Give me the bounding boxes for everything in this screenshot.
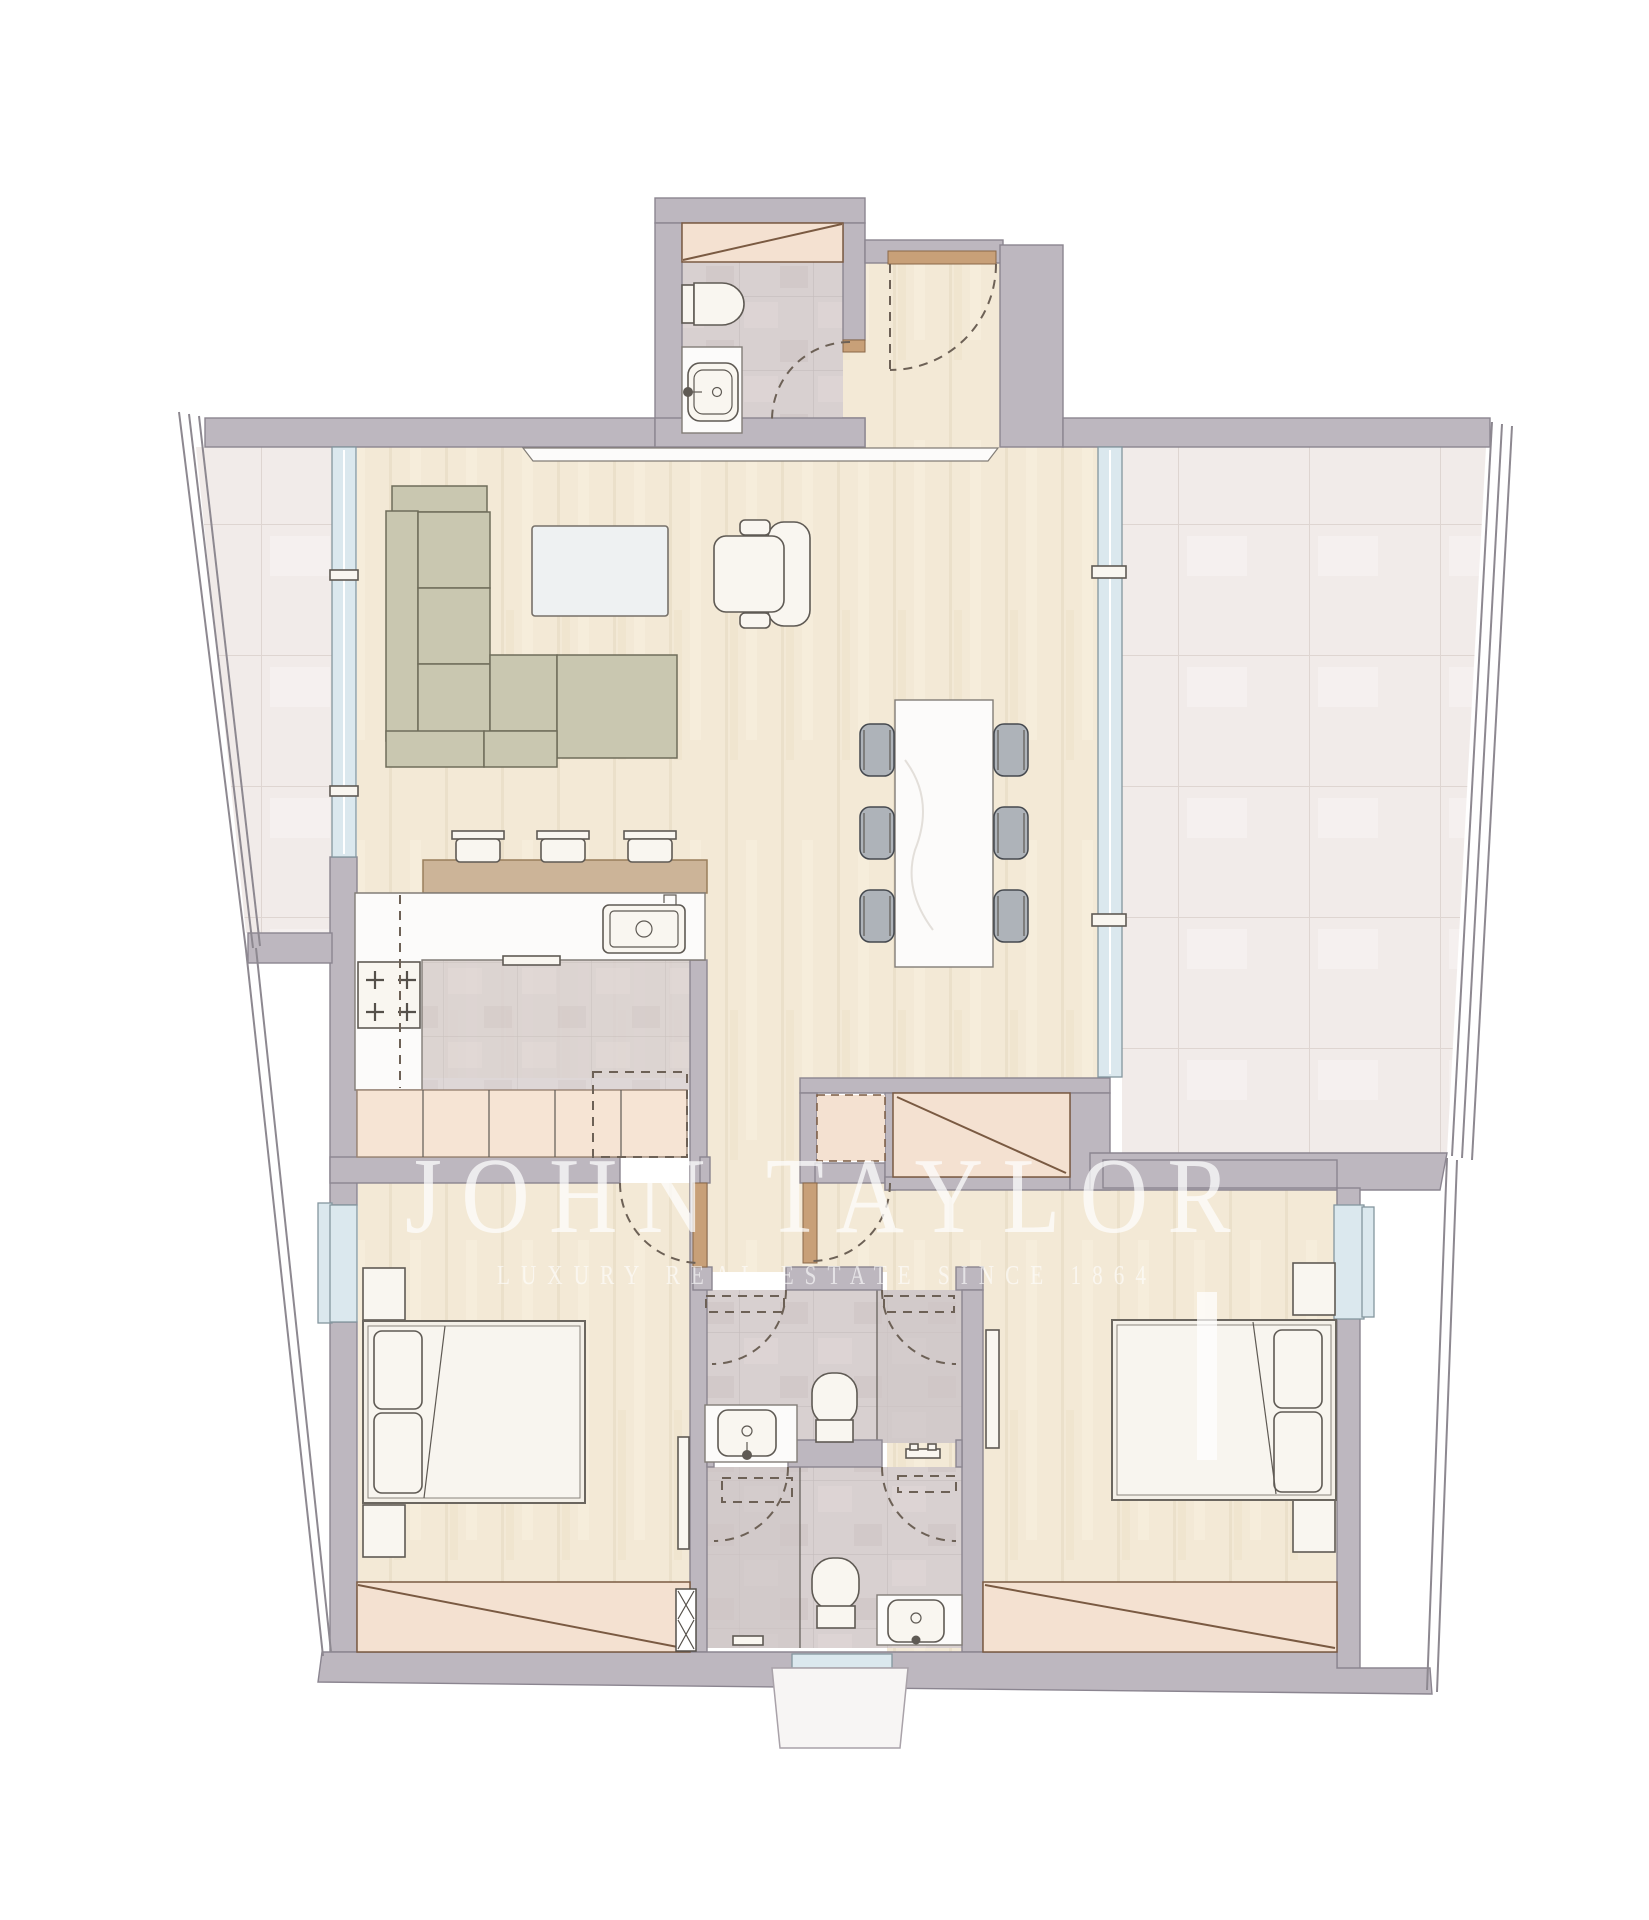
toilet-seat	[817, 1606, 855, 1628]
wall-segment	[205, 418, 655, 447]
pillow	[1274, 1330, 1322, 1408]
wall-segment	[690, 960, 707, 1652]
armchair-seat	[714, 536, 784, 612]
dining-chair	[860, 724, 894, 776]
facade-line	[246, 950, 323, 1656]
sofa-cushion	[418, 588, 490, 664]
floor-plan-drawing: JOHN TAYLOR LUXURY REAL ESTATE SINCE 186…	[0, 0, 1649, 1920]
bar-counter	[423, 860, 707, 893]
entry-hall-floor	[865, 263, 1000, 447]
watermark-title: JOHN TAYLOR	[405, 1137, 1250, 1256]
bar-stools	[452, 831, 676, 862]
wall-segment	[655, 198, 865, 223]
bar-stool	[541, 839, 585, 862]
pillow	[374, 1331, 422, 1409]
wall-segment	[330, 1322, 357, 1652]
sofa-front	[484, 731, 557, 767]
duct	[676, 1589, 696, 1651]
terrace-right-floor	[1122, 447, 1486, 1153]
wall-segment	[788, 1440, 882, 1467]
floor-plan-page: JOHN TAYLOR LUXURY REAL ESTATE SINCE 186…	[0, 0, 1649, 1920]
toilet	[812, 1373, 857, 1425]
bar-stool	[452, 831, 504, 839]
bar-stool	[456, 839, 500, 862]
wall-segment	[962, 1290, 983, 1652]
armchair	[714, 520, 810, 628]
sofa-back	[386, 511, 418, 741]
nightstand	[363, 1505, 405, 1557]
dining-chair	[994, 890, 1028, 942]
shower-drain	[733, 1636, 763, 1645]
wall-segment	[1063, 418, 1490, 447]
wall-segment	[248, 933, 332, 963]
wall-segment	[956, 1440, 962, 1467]
tv-console	[523, 448, 998, 461]
dining-area	[860, 700, 1028, 967]
duct-x	[676, 1589, 696, 1651]
terrace-left-floor	[196, 447, 332, 933]
toilet	[694, 283, 744, 325]
bathroom-2-shower	[707, 1467, 800, 1648]
nightstand	[1293, 1263, 1335, 1315]
open-door-leaf	[678, 1437, 689, 1549]
wall-segment	[843, 223, 865, 340]
window	[330, 1205, 357, 1322]
shower-mixer	[910, 1444, 918, 1450]
cooktop	[358, 962, 420, 1028]
bar-stool	[628, 839, 672, 862]
window-sill	[1362, 1207, 1374, 1317]
sofa-cushion	[418, 512, 490, 588]
bar-stool	[624, 831, 676, 839]
entrance-door-threshold	[888, 251, 996, 264]
nightstand	[363, 1268, 405, 1320]
toilet	[812, 1558, 859, 1610]
sliding-door-handle	[1092, 914, 1126, 926]
window-handle	[330, 786, 358, 796]
sofa-cushion	[418, 664, 490, 732]
wc-doorway-floor	[843, 352, 865, 418]
double-bed	[1112, 1320, 1336, 1500]
window-bay	[772, 1668, 908, 1748]
sofa-cushion	[490, 655, 557, 731]
facade-line	[1437, 1160, 1457, 1692]
sofa-arm	[392, 486, 487, 512]
toilet-tank	[682, 285, 694, 323]
tap	[912, 1636, 921, 1645]
pillow	[374, 1413, 422, 1493]
nightstand	[1293, 1500, 1335, 1552]
wall-segment	[655, 223, 682, 447]
watermark-mark	[1197, 1292, 1217, 1460]
pillow	[1274, 1412, 1322, 1492]
open-door-leaf	[986, 1330, 999, 1448]
wall-segment	[330, 857, 357, 1205]
armchair-arm	[740, 613, 770, 628]
wall-segment	[1337, 1188, 1360, 1207]
window-handle	[330, 570, 358, 580]
bar-stool	[537, 831, 589, 839]
double-bed	[363, 1321, 585, 1503]
sofa-chaise	[557, 655, 677, 758]
toilet-seat	[816, 1420, 853, 1442]
sofa-front	[386, 731, 484, 767]
dining-chair	[860, 890, 894, 942]
armchair-arm	[740, 520, 770, 535]
kitchen-floor	[420, 960, 690, 1090]
window	[792, 1654, 892, 1668]
window	[1334, 1205, 1364, 1319]
watermark-subtitle: LUXURY REAL ESTATE SINCE 1864	[497, 1260, 1157, 1290]
dining-chair	[994, 807, 1028, 859]
shower-mixer	[928, 1444, 936, 1450]
island-shelf	[503, 956, 560, 965]
sliding-door-handle	[1092, 566, 1126, 578]
dining-table	[895, 700, 993, 967]
wall-segment	[800, 1078, 1110, 1093]
wall-segment	[1000, 245, 1063, 447]
island-sink	[603, 905, 685, 953]
wall-segment	[1337, 1317, 1360, 1672]
facade-line	[1427, 1158, 1447, 1690]
dining-chair	[860, 807, 894, 859]
coffee-table	[532, 526, 668, 616]
dining-chair	[994, 724, 1028, 776]
